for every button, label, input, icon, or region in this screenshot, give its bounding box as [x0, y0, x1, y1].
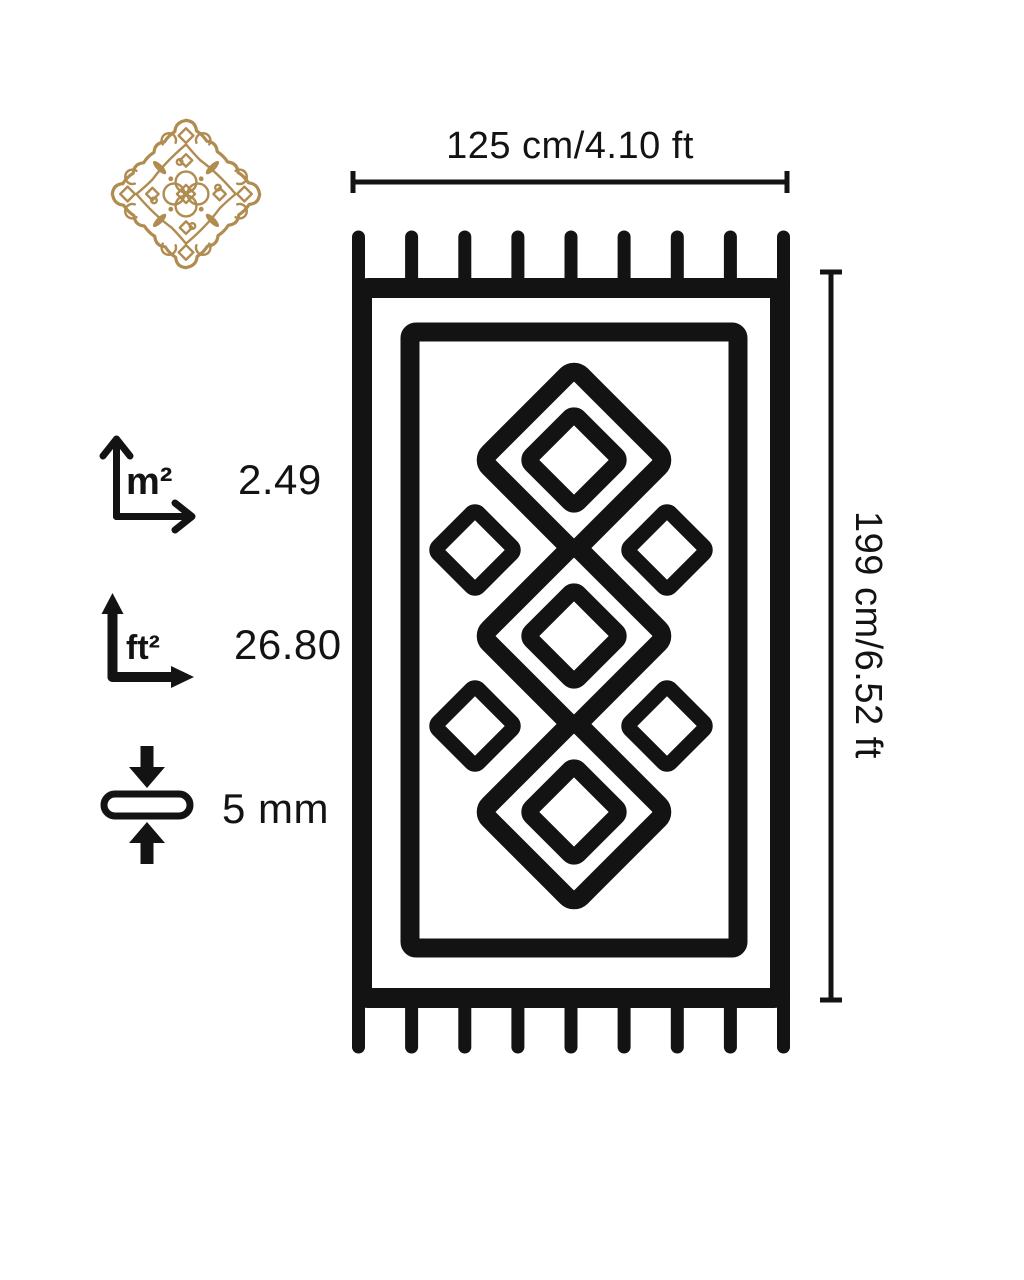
product-dimensions-diagram: 125 cm/4.10 ft	[0, 0, 1024, 1280]
right-arrowhead	[171, 666, 194, 688]
area-m2-icon: m²	[95, 428, 205, 540]
thickness-icon	[98, 742, 198, 868]
height-dimension-label: 199 cm/6.52 ft	[845, 475, 891, 795]
brand-medallion-icon	[106, 108, 266, 280]
thickness-value: 5 mm	[222, 788, 329, 830]
width-dimension-label: 125 cm/4.10 ft	[410, 124, 730, 168]
rug-diagram-icon	[340, 225, 800, 1060]
down-arrow-shaft	[141, 746, 154, 769]
ft2-unit-label: ft²	[126, 629, 160, 667]
up-arrowhead	[129, 822, 165, 843]
area-ft2-value: 26.80	[234, 624, 342, 666]
width-dimension-line	[346, 168, 794, 196]
height-dimension-line	[818, 264, 848, 1008]
area-m2-value: 2.49	[238, 459, 322, 501]
up-arrowhead	[102, 593, 124, 614]
down-arrowhead	[129, 767, 165, 788]
m2-unit-label: m²	[126, 461, 172, 503]
rug-cross-section-pill	[104, 794, 190, 816]
up-arrow-shaft	[141, 841, 154, 864]
area-ft2-icon: ft²	[95, 588, 205, 692]
